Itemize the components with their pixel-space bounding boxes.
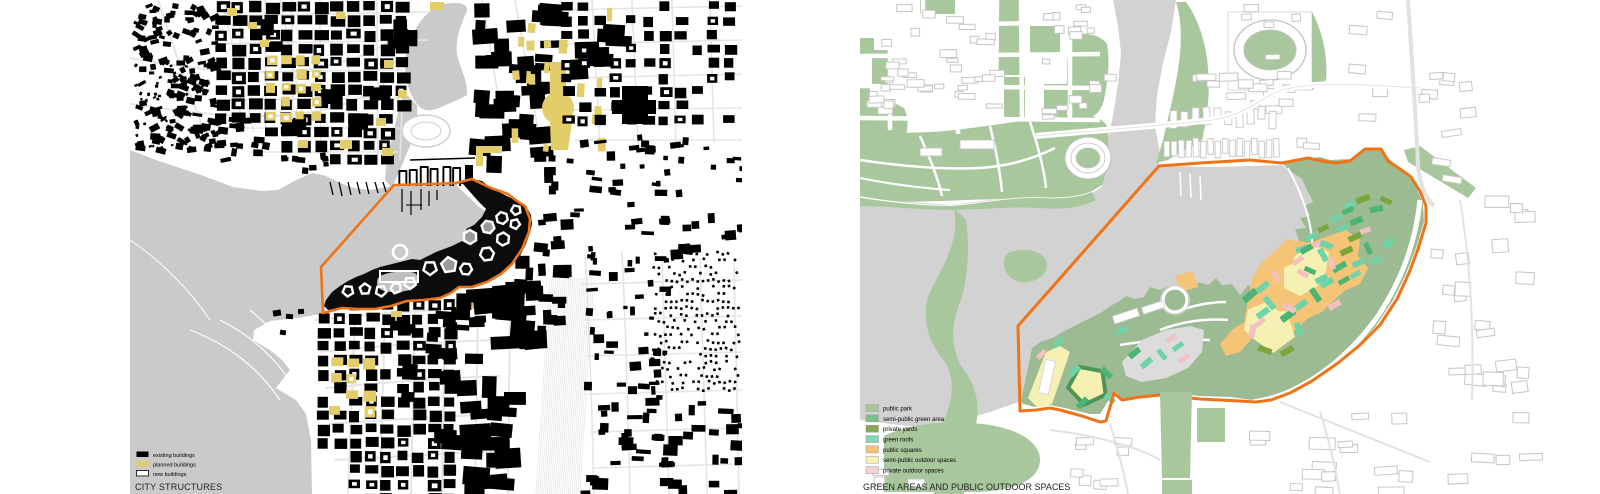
svg-text:existing buildings: existing buildings xyxy=(153,453,195,459)
svg-text:private outdoor spaces: private outdoor spaces xyxy=(883,469,944,475)
svg-text:GREEN AREAS AND PUBLIC OUTDOOR: GREEN AREAS AND PUBLIC OUTDOOR SPACES xyxy=(863,482,1070,492)
svg-text:public squares: public squares xyxy=(883,448,922,454)
svg-text:new buildings: new buildings xyxy=(153,472,187,478)
svg-text:green roofs: green roofs xyxy=(883,438,913,444)
svg-text:planned buildings: planned buildings xyxy=(153,463,196,469)
svg-text:CITY STRUCTURES: CITY STRUCTURES xyxy=(135,482,222,492)
svg-text:semi-public outdoor spaces: semi-public outdoor spaces xyxy=(883,458,956,464)
svg-text:semi-public green area: semi-public green area xyxy=(883,417,945,423)
svg-text:public park: public park xyxy=(883,407,913,413)
svg-text:private yards: private yards xyxy=(883,427,917,433)
